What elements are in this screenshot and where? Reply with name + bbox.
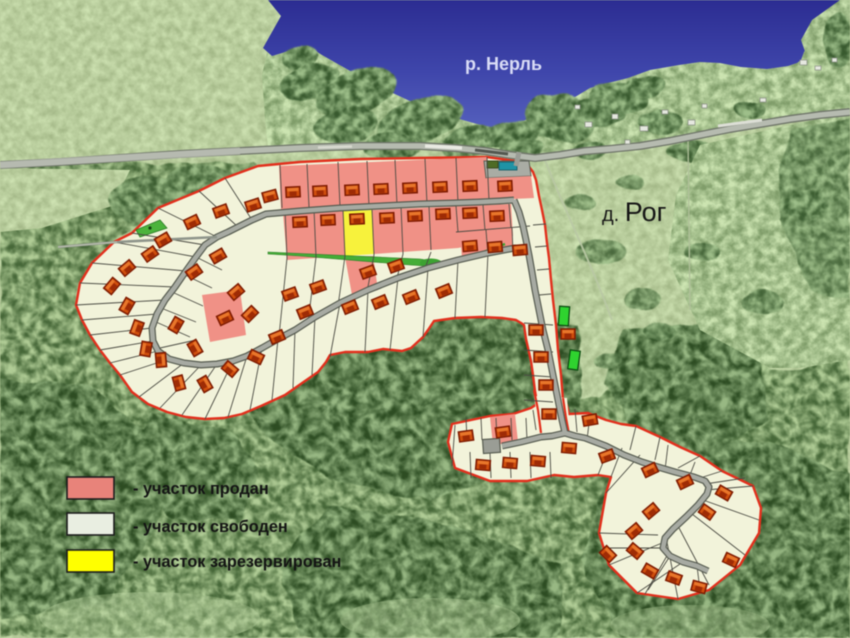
svg-text:р. Нерль: р. Нерль — [465, 54, 542, 74]
svg-text:- участок зарезервирован: - участок зарезервирован — [133, 553, 341, 571]
svg-text:- участок продан: - участок продан — [133, 480, 269, 498]
svg-text:- участок свободен: - участок свободен — [133, 518, 288, 536]
